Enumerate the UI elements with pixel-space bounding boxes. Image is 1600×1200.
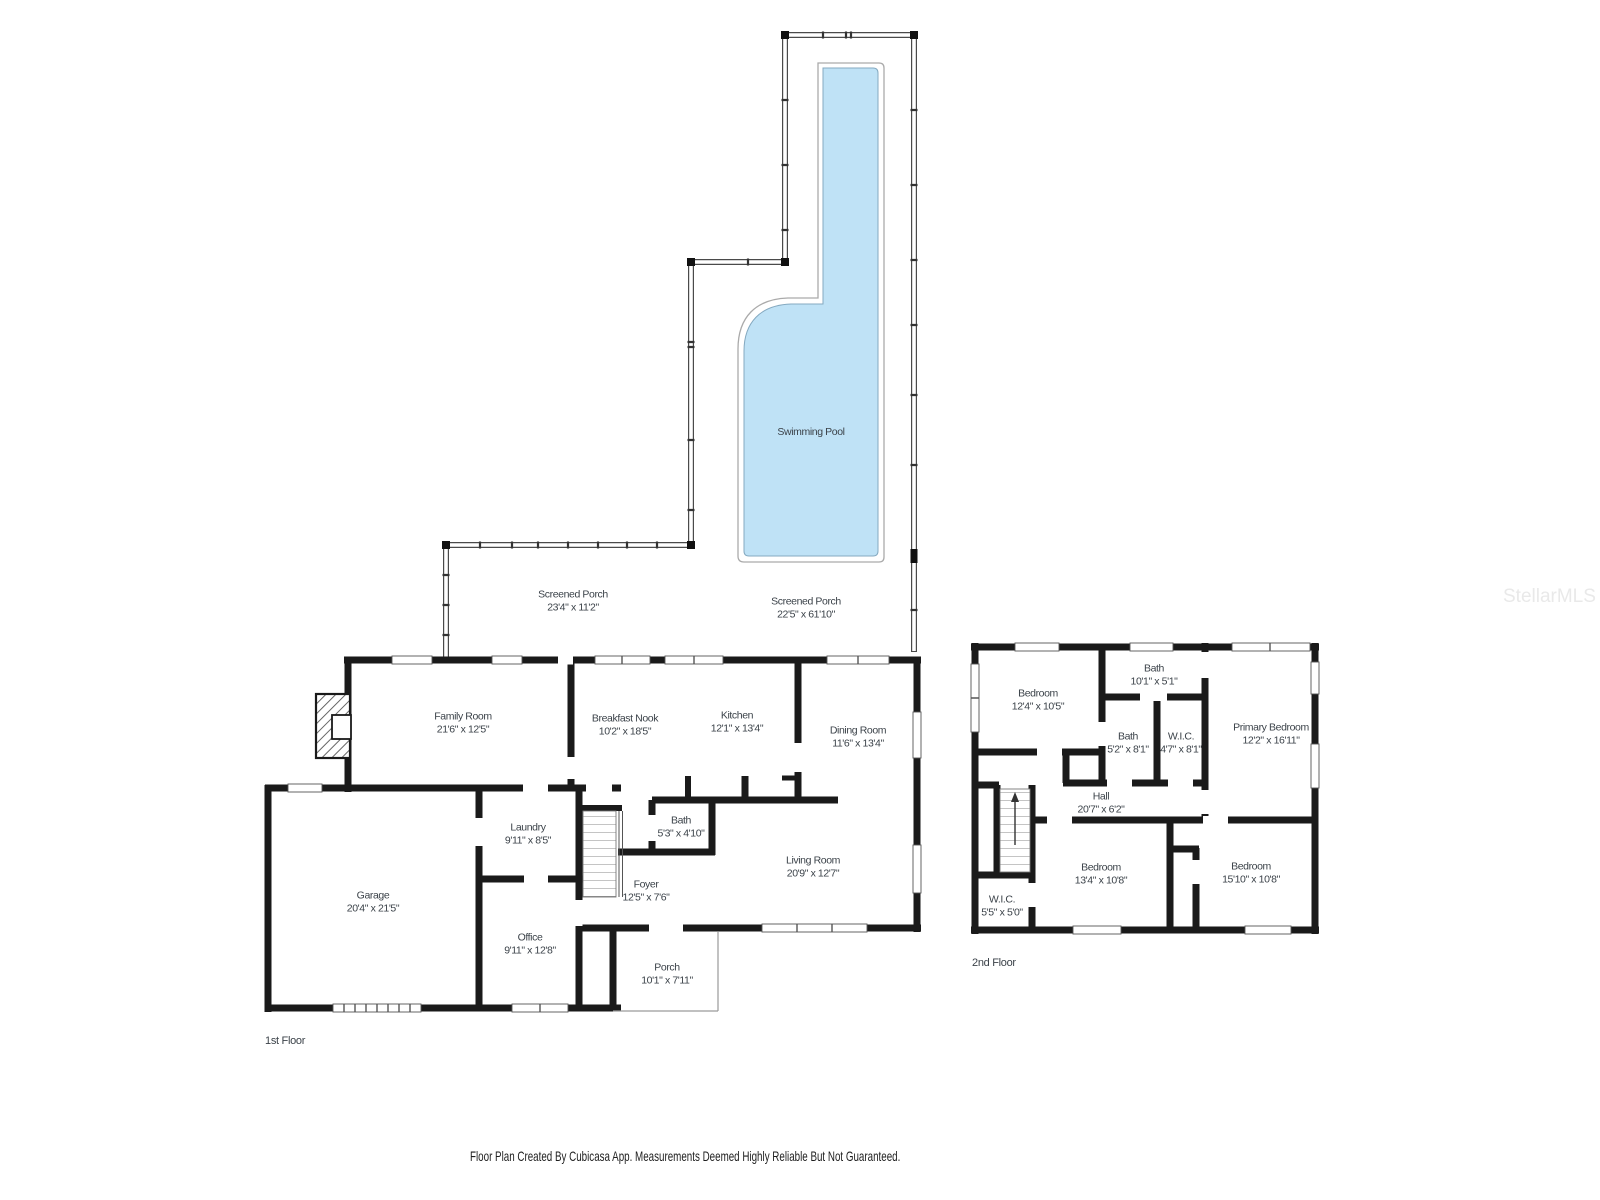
- room-name: Bedroom: [1012, 688, 1064, 701]
- room-label-living-room: Living Room 20'9" x 12'7": [786, 855, 840, 880]
- swimming-pool: [738, 63, 884, 562]
- room-name: Laundry: [505, 822, 551, 835]
- room-dims: 10'1" x 7'11": [641, 974, 693, 987]
- room-label-wic-lower: W.I.C. 5'5" x 5'0": [981, 894, 1023, 919]
- room-label-bedroom-top-left: Bedroom 12'4" x 10'5": [1012, 688, 1064, 713]
- staircase-second-floor: [1000, 789, 1030, 872]
- room-label-wic-upper: W.I.C. 4'7" x 8'1": [1160, 731, 1202, 756]
- room-dims: 10'1" x 5'1": [1131, 675, 1178, 688]
- room-name: Bath: [1107, 731, 1149, 744]
- room-label-screened-porch-left: Screened Porch 23'4" x 11'2": [538, 589, 608, 614]
- room-label-bath-first-floor: Bath 5'3" x 4'10": [658, 815, 705, 840]
- room-dims: 21'6" x 12'5": [434, 723, 491, 736]
- second-floor-title: 2nd Floor: [972, 957, 1016, 969]
- room-name: Breakfast Nook: [592, 713, 658, 726]
- floor-plan-canvas: Swimming Pool Screened Porch 23'4" x 11'…: [0, 0, 1600, 1200]
- room-dims: 22'5" x 61'10": [771, 608, 841, 621]
- screen-door: [911, 549, 918, 563]
- room-name: Kitchen: [711, 710, 763, 723]
- room-name: Living Room: [786, 855, 840, 868]
- room-name: Dining Room: [830, 725, 886, 738]
- room-label-family-room: Family Room 21'6" x 12'5": [434, 711, 491, 736]
- room-dims: 20'7" x 6'2": [1078, 803, 1125, 816]
- room-label-breakfast-nook: Breakfast Nook 10'2" x 18'5": [592, 713, 658, 738]
- room-name: Bath: [1131, 663, 1178, 676]
- room-dims: 12'2" x 16'11": [1233, 734, 1309, 747]
- room-dims: 11'6" x 13'4": [830, 737, 886, 750]
- footer-disclaimer: Floor Plan Created By Cubicasa App. Meas…: [470, 1148, 900, 1164]
- room-label-office: Office 9'11" x 12'8": [504, 932, 556, 957]
- room-dims: 10'2" x 18'5": [592, 725, 658, 738]
- room-label-bedroom-bottom-middle: Bedroom 13'4" x 10'8": [1075, 862, 1127, 887]
- room-label-porch: Porch 10'1" x 7'11": [641, 962, 693, 987]
- pool-water: [744, 68, 878, 556]
- room-label-bath-upper: Bath 10'1" x 5'1": [1131, 663, 1178, 688]
- room-dims: 5'2" x 8'1": [1107, 743, 1149, 756]
- room-dims: 4'7" x 8'1": [1160, 743, 1202, 756]
- room-label-screened-porch-right: Screened Porch 22'5" x 61'10": [771, 596, 841, 621]
- room-dims: 13'4" x 10'8": [1075, 874, 1127, 887]
- room-dims: 20'9" x 12'7": [786, 867, 840, 880]
- room-label-foyer: Foyer 12'5" x 7'6": [623, 879, 670, 904]
- room-dims: 5'3" x 4'10": [658, 827, 705, 840]
- room-dims: 12'4" x 10'5": [1012, 700, 1064, 713]
- room-dims: 9'11" x 12'8": [504, 944, 556, 957]
- stellarmls-watermark: StellarMLS: [1503, 586, 1596, 608]
- room-name: Porch: [641, 962, 693, 975]
- room-label-primary-bedroom: Primary Bedroom 12'2" x 16'11": [1233, 722, 1309, 747]
- room-dims: 23'4" x 11'2": [538, 601, 608, 614]
- room-name: Bedroom: [1075, 862, 1127, 875]
- room-label-bedroom-bottom-right: Bedroom 15'10" x 10'8": [1222, 861, 1280, 886]
- room-label-bath-small: Bath 5'2" x 8'1": [1107, 731, 1149, 756]
- room-name: Garage: [347, 890, 399, 903]
- room-label-hall: Hall 20'7" x 6'2": [1078, 791, 1125, 816]
- room-name: Hall: [1078, 791, 1125, 804]
- room-dims: 15'10" x 10'8": [1222, 873, 1280, 886]
- room-dims: 12'5" x 7'6": [623, 891, 670, 904]
- room-name: Bath: [658, 815, 705, 828]
- room-name: Family Room: [434, 711, 491, 724]
- room-dims: 5'5" x 5'0": [981, 906, 1023, 919]
- staircase-first-floor: [583, 811, 623, 897]
- room-name: Screened Porch: [538, 589, 608, 602]
- room-label-dining-room: Dining Room 11'6" x 13'4": [830, 725, 886, 750]
- room-name: Primary Bedroom: [1233, 722, 1309, 735]
- room-name: Office: [504, 932, 556, 945]
- room-name: Foyer: [623, 879, 670, 892]
- first-floor-title: 1st Floor: [265, 1035, 305, 1047]
- room-name: Screened Porch: [771, 596, 841, 609]
- room-name: W.I.C.: [981, 894, 1023, 907]
- room-label-swimming-pool: Swimming Pool: [777, 426, 844, 438]
- room-dims: 12'1" x 13'4": [711, 722, 763, 735]
- room-label-garage: Garage 20'4" x 21'5": [347, 890, 399, 915]
- room-dims: 9'11" x 8'5": [505, 834, 551, 847]
- room-dims: 20'4" x 21'5": [347, 902, 399, 915]
- room-name: Bedroom: [1222, 861, 1280, 874]
- room-label-laundry: Laundry 9'11" x 8'5": [505, 822, 551, 847]
- room-name: W.I.C.: [1160, 731, 1202, 744]
- fireplace: [316, 694, 351, 758]
- room-label-kitchen: Kitchen 12'1" x 13'4": [711, 710, 763, 735]
